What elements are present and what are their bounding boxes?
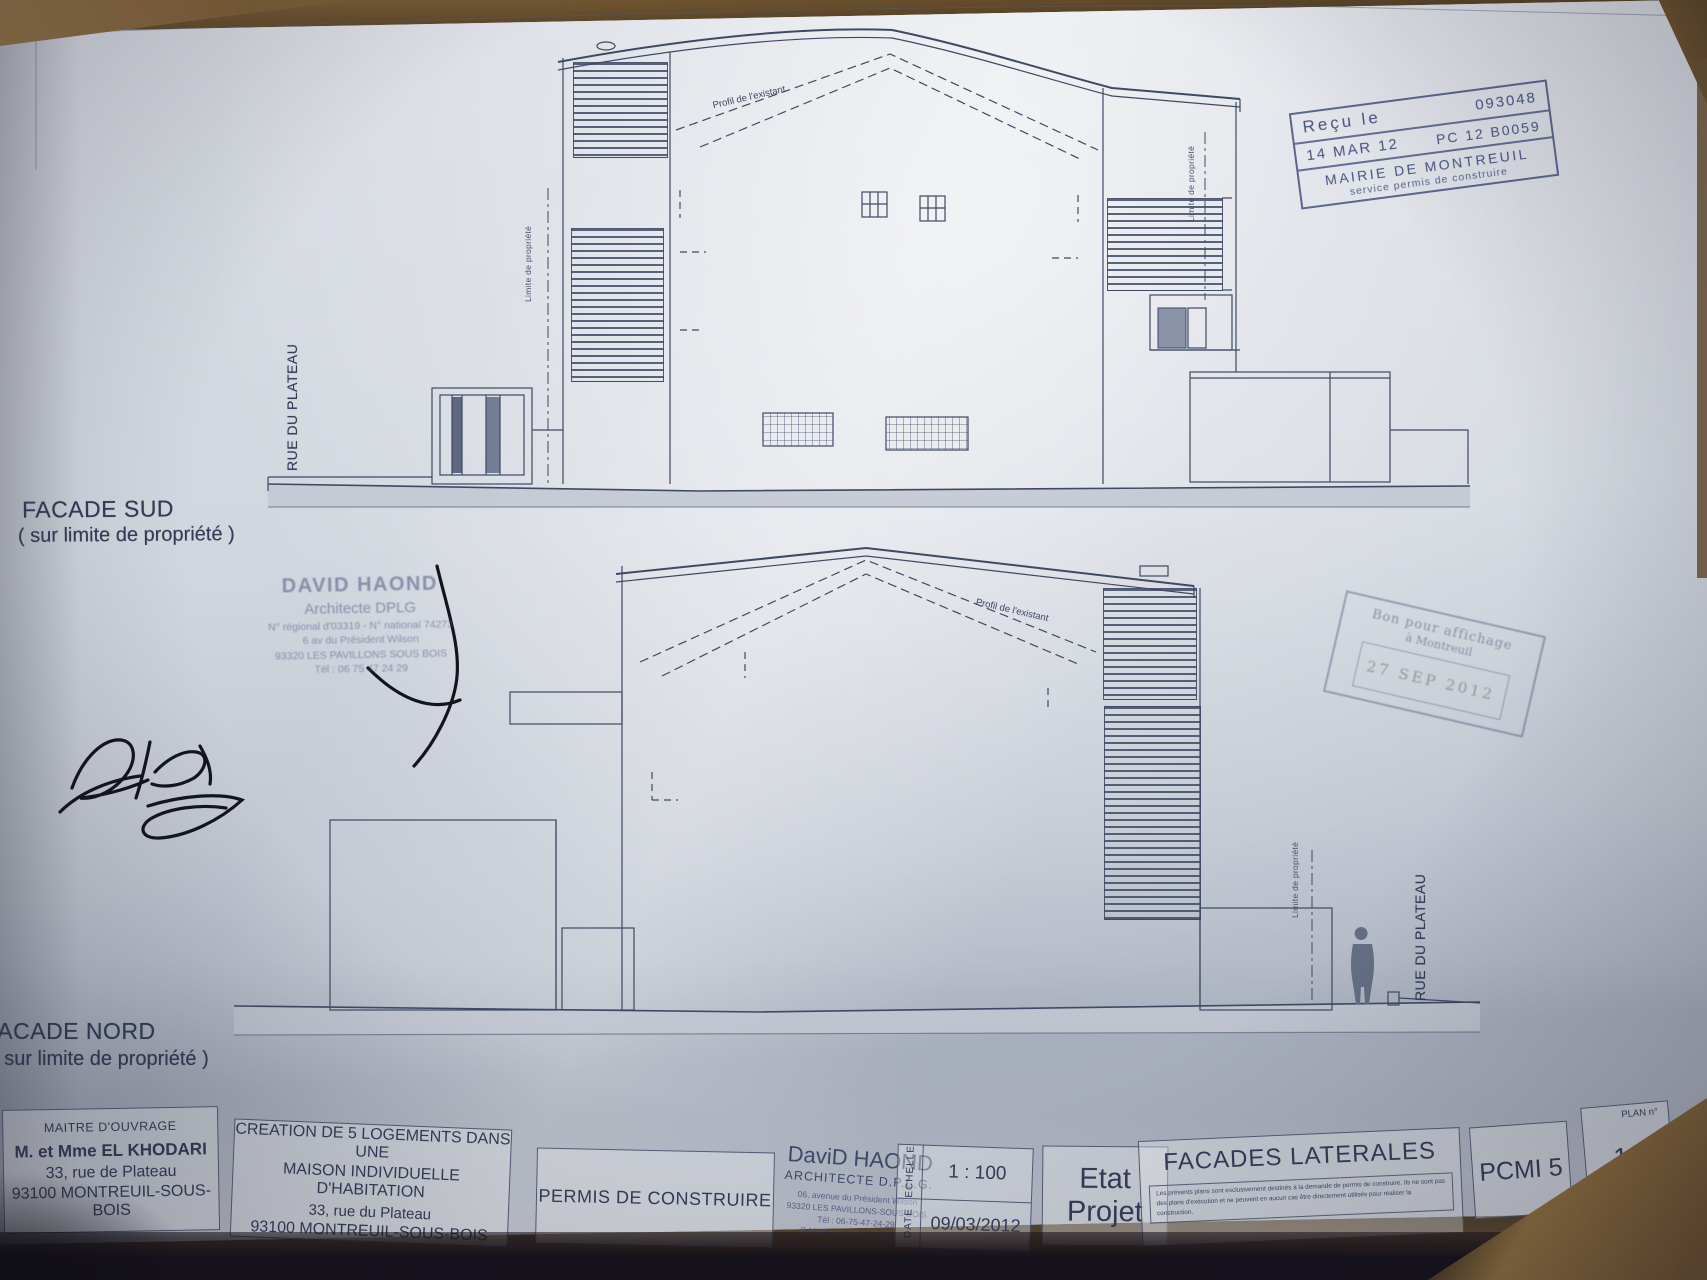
status-line1: Etat — [1079, 1162, 1131, 1196]
photo-of-architectural-plan: FACADE SUD ( sur limite de propriété ) F… — [0, 0, 1707, 1280]
bon-pour-date: 27 SEP 2012 — [1365, 657, 1497, 704]
desk-right-edge — [1697, 58, 1707, 578]
drawing-title: FACADES LATERALES — [1139, 1136, 1460, 1178]
bottom-left-shadow — [0, 1170, 200, 1280]
facade-sud-title: FACADE SUD — [22, 495, 174, 523]
scale-label: ECHELLE — [903, 1145, 916, 1198]
permit-type-label: PERMIS DE CONSTRUIRE — [538, 1185, 771, 1211]
property-limit-label: Limite de propriété — [523, 226, 533, 302]
louver-panel — [573, 62, 668, 158]
drawing-title-block: FACADES LATERALES Les présents plans son… — [1138, 1127, 1464, 1247]
property-limit-label: Limite de propriété — [1186, 146, 1196, 222]
pcmi-number: PCMI 5 — [1478, 1153, 1563, 1188]
street-label-sud: RUE DU PLATEAU — [284, 344, 300, 471]
architect-ink-stamp: DAVID HAOND Architecte DPLG N° régional … — [247, 570, 474, 678]
louver-panel — [1107, 198, 1223, 291]
facade-nord-subtitle: ( sur limite de propriété ) — [0, 1048, 209, 1071]
facade-nord-title: FACADE NORD — [0, 1018, 156, 1045]
facade-sud-subtitle: ( sur limite de propriété ) — [18, 523, 235, 548]
project-block: CREATION DE 5 LOGEMENTS DANS UNE MAISON … — [230, 1118, 513, 1247]
louver-panel — [1104, 706, 1201, 920]
status-line2: Projet — [1067, 1196, 1143, 1230]
facade-sud-drawing — [268, 29, 1470, 507]
stamp-number: 093048 — [1474, 88, 1538, 113]
owner-header: MAITRE D'OUVRAGE — [44, 1119, 177, 1135]
owner-name: M. et Mme EL KHODARI — [14, 1139, 207, 1162]
architect-stamp-name: DAVID HAOND — [247, 570, 472, 601]
louver-panel — [571, 228, 664, 382]
property-limit-label: Limite de propriété — [1290, 842, 1300, 918]
disclaimer-text: Les présents plans sont exclusivement de… — [1149, 1172, 1454, 1223]
scale-value: 1 : 100 — [922, 1146, 1033, 1202]
project-address1: 33, rue du Plateau — [308, 1201, 431, 1223]
stamp-received-label: Reçu le — [1301, 108, 1382, 138]
louver-panel — [1103, 588, 1197, 700]
street-label-nord: RUE DU PLATEAU — [1412, 874, 1428, 1001]
